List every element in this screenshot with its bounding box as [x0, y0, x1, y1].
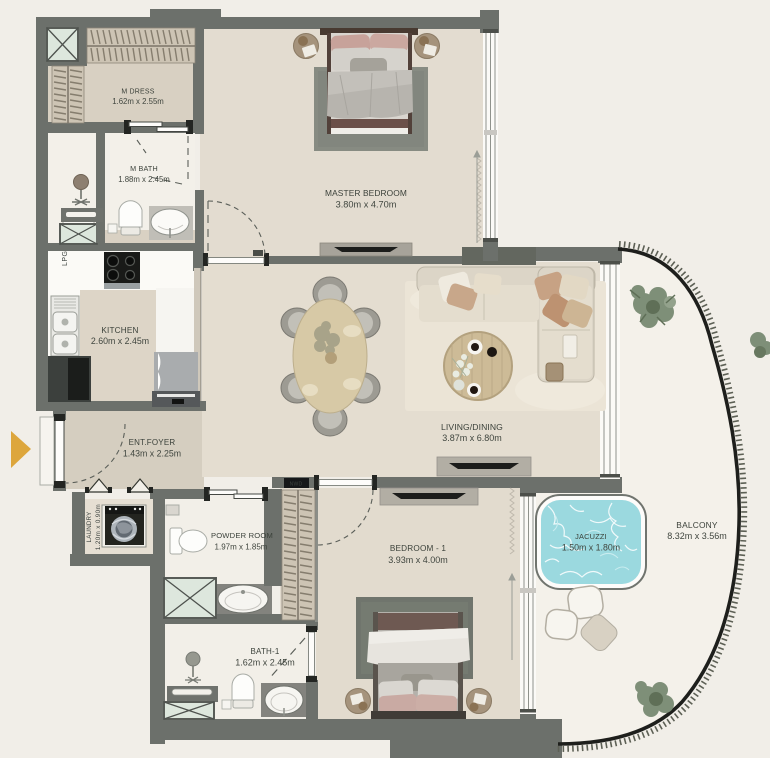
svg-text:2.60m x 2.45m: 2.60m x 2.45m [91, 336, 149, 346]
svg-text:1.43m x 2.25m: 1.43m x 2.25m [123, 449, 181, 459]
svg-text:JACUZZI: JACUZZI [575, 532, 607, 541]
svg-text:BATH-1: BATH-1 [250, 647, 279, 656]
svg-text:POWDER ROOM: POWDER ROOM [211, 531, 273, 540]
svg-text:8.32m x 3.56m: 8.32m x 3.56m [667, 531, 727, 541]
svg-text:1.62m x 2.55m: 1.62m x 2.55m [112, 97, 164, 106]
svg-text:1.88m x 2.45m: 1.88m x 2.45m [118, 175, 170, 184]
svg-text:ENT.FOYER: ENT.FOYER [129, 438, 176, 447]
svg-text:M BATH: M BATH [130, 164, 158, 173]
svg-text:3.93m x 4.00m: 3.93m x 4.00m [388, 555, 448, 565]
svg-text:3.87m x 6.80m: 3.87m x 6.80m [442, 433, 502, 443]
svg-text:LAUNDRY: LAUNDRY [86, 512, 93, 543]
svg-text:1.97m x 1.85m: 1.97m x 1.85m [215, 543, 268, 552]
svg-text:MASTER BEDROOM: MASTER BEDROOM [325, 188, 407, 198]
svg-text:NWD: NWD [290, 482, 303, 488]
svg-text:LIVING/DINING: LIVING/DINING [441, 422, 503, 432]
svg-text:BALCONY: BALCONY [676, 520, 718, 530]
svg-text:1.20m x 0.90m: 1.20m x 0.90m [95, 504, 102, 550]
svg-text:3.80m x 4.70m: 3.80m x 4.70m [336, 200, 397, 210]
svg-text:1.62m x 2.45m: 1.62m x 2.45m [235, 658, 295, 668]
svg-text:BEDROOM - 1: BEDROOM - 1 [390, 544, 447, 553]
svg-text:M DRESS: M DRESS [121, 89, 154, 96]
svg-text:LPG: LPG [62, 250, 69, 266]
svg-text:1.50m x 1.80m: 1.50m x 1.80m [562, 543, 620, 553]
svg-text:KITCHEN: KITCHEN [101, 326, 138, 335]
